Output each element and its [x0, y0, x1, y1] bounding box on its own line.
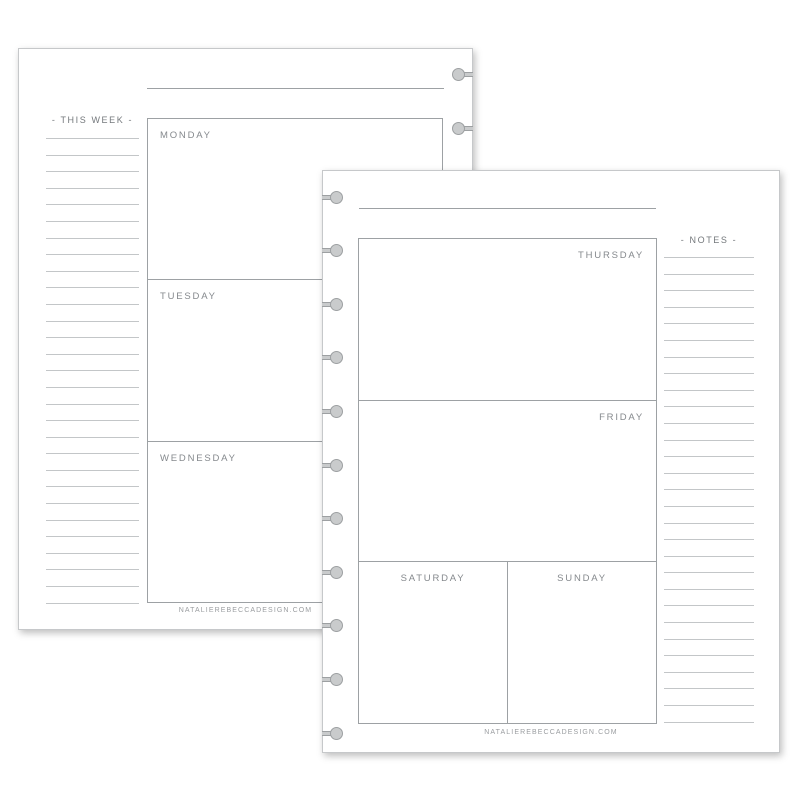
ruled-line — [46, 337, 139, 338]
ruled-line — [664, 423, 754, 424]
ruled-line — [664, 672, 754, 673]
disc-punch-stem — [322, 409, 332, 414]
disc-punch-head — [330, 566, 343, 579]
disc-punch-stem — [463, 72, 473, 77]
disc-punch-stem — [322, 463, 332, 468]
disc-punch-icon — [322, 673, 343, 686]
disc-punch-head — [452, 122, 465, 135]
ruled-line — [46, 138, 139, 139]
ruled-line — [664, 506, 754, 507]
ruled-line — [664, 373, 754, 374]
ruled-line — [664, 605, 754, 606]
disc-punch-head — [330, 298, 343, 311]
disc-punch-stem — [322, 195, 332, 200]
ruled-line — [664, 539, 754, 540]
day-cell-friday: FRIDAY — [359, 400, 656, 562]
website-footer: NATALIEREBECCADESIGN.COM — [323, 728, 779, 737]
ruled-line — [664, 390, 754, 391]
disc-punch-head — [330, 244, 343, 257]
disc-punch-head — [330, 619, 343, 632]
disc-punch-icon — [322, 244, 343, 257]
ruled-line — [46, 271, 139, 272]
disc-punch-icon — [322, 512, 343, 525]
disc-punch-head — [330, 673, 343, 686]
planner-product-mockup: - THIS WEEK - MONDAY TUESDAY WEDNESDAY N… — [0, 0, 800, 800]
header-rule — [359, 208, 656, 209]
day-cell-saturday: SATURDAY — [359, 562, 507, 723]
this-week-ruled-lines — [46, 138, 139, 619]
ruled-line — [664, 489, 754, 490]
ruled-line — [664, 340, 754, 341]
this-week-heading: - THIS WEEK - — [46, 115, 139, 125]
ruled-line — [46, 453, 139, 454]
notes-ruled-lines — [664, 257, 754, 738]
ruled-line — [664, 572, 754, 573]
ruled-line — [664, 556, 754, 557]
ruled-line — [664, 357, 754, 358]
disc-punch-stem — [322, 248, 332, 253]
ruled-line — [664, 456, 754, 457]
day-label-sunday: SUNDAY — [508, 562, 656, 584]
ruled-line — [664, 639, 754, 640]
ruled-line — [46, 520, 139, 521]
weekday-grid-thu-sun: THURSDAY FRIDAY SATURDAY SUNDAY — [358, 238, 657, 724]
weekend-row: SATURDAY SUNDAY — [359, 561, 656, 723]
front-page: THURSDAY FRIDAY SATURDAY SUNDAY - NOTES … — [322, 170, 780, 753]
ruled-line — [46, 536, 139, 537]
ruled-line — [664, 323, 754, 324]
notes-heading: - NOTES - — [664, 235, 754, 245]
ruled-line — [46, 437, 139, 438]
ruled-line — [664, 274, 754, 275]
ruled-line — [664, 523, 754, 524]
day-label-monday: MONDAY — [148, 119, 442, 141]
ruled-line — [46, 387, 139, 388]
ruled-line — [664, 705, 754, 706]
ruled-line — [46, 155, 139, 156]
ruled-line — [664, 440, 754, 441]
ruled-line — [664, 655, 754, 656]
ruled-line — [46, 420, 139, 421]
disc-punch-stem — [322, 355, 332, 360]
disc-punch-icon — [322, 298, 343, 311]
ruled-line — [46, 553, 139, 554]
disc-punch-icon — [322, 459, 343, 472]
ruled-line — [46, 603, 139, 604]
ruled-line — [46, 287, 139, 288]
ruled-line — [664, 257, 754, 258]
ruled-line — [664, 688, 754, 689]
ruled-line — [46, 221, 139, 222]
day-label-friday: FRIDAY — [359, 401, 656, 423]
disc-punch-head — [330, 191, 343, 204]
ruled-line — [46, 171, 139, 172]
ruled-line — [46, 204, 139, 205]
ruled-line — [46, 404, 139, 405]
ruled-line — [46, 321, 139, 322]
ruled-line — [46, 238, 139, 239]
ruled-line — [664, 473, 754, 474]
ruled-line — [664, 622, 754, 623]
ruled-line — [46, 486, 139, 487]
day-cell-thursday: THURSDAY — [359, 239, 656, 400]
ruled-line — [46, 503, 139, 504]
ruled-line — [46, 586, 139, 587]
disc-punch-stem — [322, 570, 332, 575]
day-label-saturday: SATURDAY — [359, 562, 507, 584]
ruled-line — [46, 370, 139, 371]
disc-punch-head — [330, 512, 343, 525]
ruled-line — [46, 304, 139, 305]
disc-punch-head — [330, 405, 343, 418]
ruled-line — [664, 589, 754, 590]
disc-punch-head — [452, 68, 465, 81]
disc-punch-icon — [322, 351, 343, 364]
day-label-thursday: THURSDAY — [359, 239, 656, 261]
disc-punch-icon — [452, 68, 473, 81]
ruled-line — [46, 470, 139, 471]
ruled-line — [664, 307, 754, 308]
disc-punch-icon — [452, 122, 473, 135]
disc-punch-icon — [322, 566, 343, 579]
ruled-line — [46, 254, 139, 255]
ruled-line — [46, 569, 139, 570]
disc-punch-head — [330, 351, 343, 364]
disc-punch-icon — [322, 619, 343, 632]
ruled-line — [46, 188, 139, 189]
disc-punch-icon — [322, 405, 343, 418]
ruled-line — [664, 290, 754, 291]
disc-punch-stem — [322, 516, 332, 521]
disc-punch-stem — [322, 677, 332, 682]
disc-punch-stem — [322, 302, 332, 307]
disc-punch-stem — [463, 126, 473, 131]
header-rule — [147, 88, 444, 89]
day-cell-sunday: SUNDAY — [507, 562, 656, 723]
ruled-line — [46, 354, 139, 355]
ruled-line — [664, 722, 754, 723]
disc-punch-head — [330, 459, 343, 472]
disc-punch-stem — [322, 623, 332, 628]
disc-punch-icon — [322, 191, 343, 204]
ruled-line — [664, 406, 754, 407]
